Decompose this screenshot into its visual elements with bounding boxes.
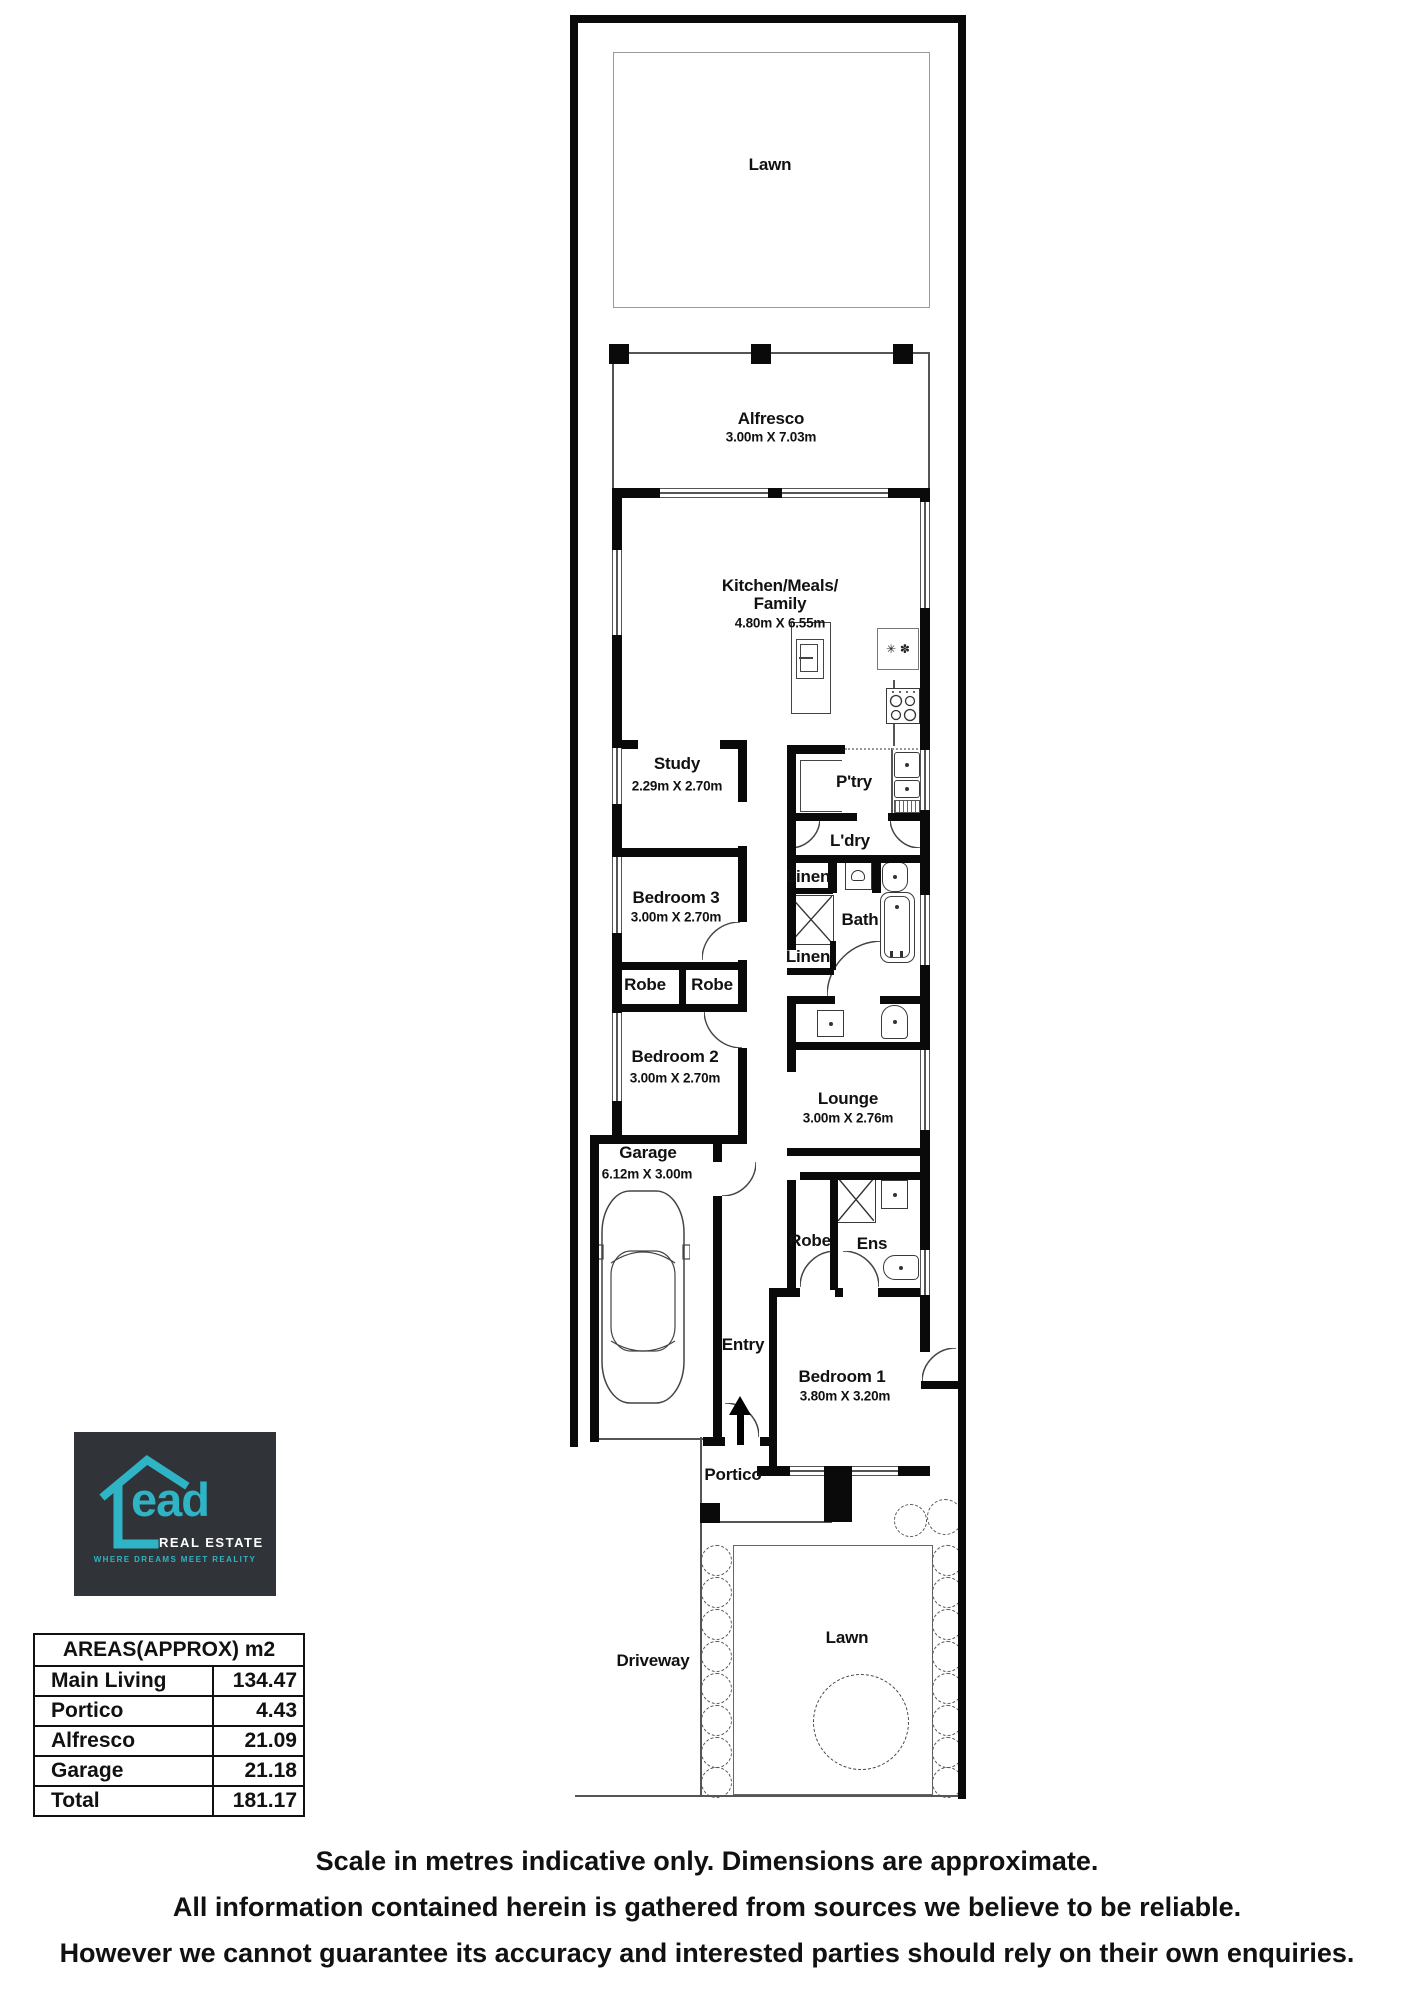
- bathtub-icon: [880, 892, 915, 963]
- wall: [920, 608, 930, 680]
- wall: [958, 15, 966, 1799]
- window: [790, 1466, 824, 1476]
- ensuite-shower-icon: [837, 1177, 876, 1223]
- label-lawn-top: Lawn: [749, 155, 792, 175]
- bathtub-feet: [890, 951, 893, 957]
- wall: [612, 848, 747, 857]
- area-value: 181.17: [213, 1786, 304, 1816]
- wall: [769, 1288, 777, 1470]
- dims-bedroom1: 3.80m X 3.20m: [800, 1389, 890, 1404]
- wall: [888, 813, 930, 821]
- entry-arrow-shaft: [737, 1415, 744, 1445]
- label-kitchen-2: Family: [754, 594, 807, 614]
- wall: [893, 344, 913, 364]
- label-linen-top: Linen: [786, 867, 830, 887]
- tree-icon: [813, 1674, 909, 1770]
- wall-line: [928, 352, 930, 488]
- logo-tagline: WHERE DREAMS MEET REALITY: [74, 1555, 276, 1564]
- fridge-space: ✳ ✽: [877, 628, 919, 670]
- area-label: Total: [34, 1786, 213, 1816]
- label-garage: Garage: [619, 1143, 676, 1163]
- dims-alfresco: 3.00m X 7.03m: [726, 430, 816, 445]
- window: [920, 1250, 930, 1295]
- table-row: Portico 4.43: [34, 1696, 304, 1726]
- wall: [830, 941, 836, 970]
- area-value: 4.43: [213, 1696, 304, 1726]
- label-portico: Portico: [704, 1465, 761, 1485]
- label-linen-bottom: Linen: [786, 947, 830, 967]
- wall-line: [575, 1795, 966, 1797]
- cooktop-icon: [886, 688, 920, 724]
- disclaimer-line-2: All information contained herein is gath…: [0, 1884, 1414, 1930]
- window: [612, 748, 622, 804]
- wall: [920, 810, 930, 895]
- wall: [920, 965, 930, 1050]
- dims-study: 2.29m X 2.70m: [632, 779, 722, 794]
- bathtub-drain: [895, 905, 899, 909]
- door-arc: [843, 1251, 879, 1287]
- window: [612, 550, 622, 635]
- kitchen-island: [791, 622, 831, 714]
- bush-icon: [701, 1767, 732, 1798]
- logo-brand-word: ead: [131, 1472, 209, 1527]
- wall: [787, 1000, 796, 1072]
- wall: [570, 15, 966, 23]
- wall: [835, 1288, 843, 1297]
- area-label: Garage: [34, 1756, 213, 1786]
- shrub-icon: [894, 1504, 927, 1537]
- floorplan-page: ✳ ✽: [0, 0, 1414, 2000]
- wall: [738, 846, 747, 922]
- label-robe-b: Robe: [691, 975, 733, 995]
- label-bath: Bath: [842, 910, 879, 930]
- window: [782, 488, 888, 498]
- dims-bedroom3: 3.00m X 2.70m: [631, 910, 721, 925]
- window: [660, 488, 768, 498]
- wall: [787, 996, 835, 1004]
- wall-line: [612, 352, 614, 488]
- disclaimer-line-3: However we cannot guarantee its accuracy…: [0, 1930, 1414, 1976]
- agency-logo: ead REAL ESTATE WHERE DREAMS MEET REALIT…: [74, 1432, 276, 1596]
- wall: [738, 1048, 747, 1142]
- ensuite-toilet-icon: [883, 1255, 919, 1280]
- window: [612, 1013, 622, 1101]
- wall: [609, 344, 629, 364]
- label-laundry: L'dry: [830, 831, 870, 851]
- wall: [612, 933, 622, 1013]
- car-icon: [596, 1183, 690, 1413]
- door-arc: [704, 1010, 742, 1048]
- wall: [700, 1503, 720, 1523]
- label-pantry: P'try: [836, 772, 872, 792]
- powder-basin-icon: [817, 1010, 844, 1037]
- wall: [760, 1437, 769, 1446]
- wall: [920, 1295, 930, 1352]
- label-bedroom2: Bedroom 2: [632, 1047, 719, 1067]
- entry-arrow-head: [729, 1396, 751, 1415]
- door-arc: [702, 922, 740, 960]
- wall: [898, 1466, 930, 1476]
- window: [920, 750, 930, 810]
- bathtub-feet2: [900, 951, 903, 957]
- wall: [921, 1381, 958, 1389]
- disclaimer-line-1: Scale in metres indicative only. Dimensi…: [0, 1838, 1414, 1884]
- label-lawn-bottom: Lawn: [826, 1628, 869, 1648]
- disclaimer: Scale in metres indicative only. Dimensi…: [0, 1838, 1414, 1976]
- bush-icon: [701, 1609, 732, 1640]
- wall: [787, 888, 833, 894]
- table-row: Alfresco 21.09: [34, 1726, 304, 1756]
- wall: [590, 1144, 599, 1442]
- window: [920, 1050, 930, 1130]
- label-alfresco: Alfresco: [738, 409, 804, 429]
- wall: [824, 1466, 852, 1522]
- wall: [830, 1172, 838, 1290]
- wall: [787, 1042, 930, 1050]
- fridge-icon: ✳ ✽: [886, 642, 910, 656]
- area-value: 134.47: [213, 1666, 304, 1696]
- wall-line: [891, 748, 893, 814]
- toilet-icon: [882, 862, 908, 892]
- label-ensuite: Ens: [857, 1234, 888, 1254]
- pantry-sink-bowl1: [894, 752, 920, 778]
- wall: [872, 861, 881, 893]
- pantry-sink-bowl2: [894, 780, 920, 798]
- window: [920, 502, 930, 608]
- bush-icon: [701, 1577, 732, 1608]
- bush-icon: [701, 1673, 732, 1704]
- wall: [787, 745, 796, 950]
- area-label: Main Living: [34, 1666, 213, 1696]
- dims-garage: 6.12m X 3.00m: [602, 1167, 692, 1182]
- wall: [920, 488, 930, 502]
- wall: [751, 344, 771, 364]
- logo-brand-sub: REAL ESTATE: [159, 1535, 264, 1550]
- label-entry: Entry: [722, 1335, 764, 1355]
- door-arc: [922, 1348, 956, 1382]
- washing-machine-drum: [851, 870, 865, 881]
- wall: [880, 996, 930, 1004]
- dims-lounge: 3.00m X 2.76m: [803, 1111, 893, 1126]
- window: [920, 895, 930, 965]
- area-value: 21.18: [213, 1756, 304, 1786]
- powder-toilet-icon: [881, 1005, 908, 1039]
- bush-icon: [701, 1737, 732, 1768]
- wall: [787, 813, 857, 821]
- washing-machine-icon: [845, 862, 872, 890]
- wall: [777, 1288, 800, 1297]
- wall: [768, 488, 782, 498]
- wall: [787, 855, 930, 863]
- wall: [738, 740, 747, 802]
- wall-line: [612, 352, 930, 354]
- wall: [713, 1196, 722, 1445]
- areas-header-row: AREAS(APPROX) m2: [34, 1634, 304, 1666]
- wall: [713, 1144, 722, 1162]
- window: [852, 1466, 898, 1476]
- wall: [679, 968, 686, 1006]
- wall: [920, 680, 930, 750]
- bush-icon: [701, 1545, 732, 1576]
- door-arc: [890, 818, 920, 848]
- wall: [612, 488, 660, 498]
- bush-icon: [701, 1641, 732, 1672]
- wall: [800, 1172, 930, 1180]
- label-bedroom3: Bedroom 3: [633, 888, 720, 908]
- wall: [612, 635, 622, 748]
- areas-table: AREAS(APPROX) m2 Main Living 134.47 Port…: [33, 1633, 305, 1817]
- areas-header: AREAS(APPROX) m2: [34, 1634, 304, 1666]
- label-robe-bed1: Robe: [789, 1231, 831, 1251]
- label-bedroom1: Bedroom 1: [799, 1367, 886, 1387]
- area-label: Portico: [34, 1696, 213, 1726]
- wall: [612, 1004, 747, 1012]
- dims-kitchen: 4.80m X 6.55m: [735, 616, 825, 631]
- label-study: Study: [654, 754, 700, 774]
- wall: [612, 498, 622, 550]
- table-row: Main Living 134.47: [34, 1666, 304, 1696]
- sink-faucet: [799, 657, 813, 659]
- pantry-drainer: [894, 800, 920, 813]
- label-driveway: Driveway: [616, 1651, 689, 1671]
- wall: [570, 15, 578, 1447]
- table-row: Garage 21.18: [34, 1756, 304, 1786]
- wall: [703, 1437, 725, 1446]
- entry-arrow: [729, 1396, 751, 1445]
- label-kitchen-1: Kitchen/Meals/: [722, 576, 838, 596]
- lawn-area-top: [613, 52, 930, 308]
- kitchen-sink: [796, 639, 824, 679]
- wall: [787, 1148, 930, 1156]
- dims-bedroom2: 3.00m X 2.70m: [630, 1071, 720, 1086]
- window: [612, 857, 622, 933]
- door-arc: [722, 1162, 756, 1196]
- wall: [787, 968, 834, 975]
- area-value: 21.09: [213, 1726, 304, 1756]
- bush-icon: [701, 1705, 732, 1736]
- wall-line: [598, 1438, 710, 1440]
- area-label: Alfresco: [34, 1726, 213, 1756]
- label-lounge: Lounge: [818, 1089, 878, 1109]
- ensuite-basin-icon: [881, 1180, 908, 1209]
- table-row: Total 181.17: [34, 1786, 304, 1816]
- label-robe-a: Robe: [624, 975, 666, 995]
